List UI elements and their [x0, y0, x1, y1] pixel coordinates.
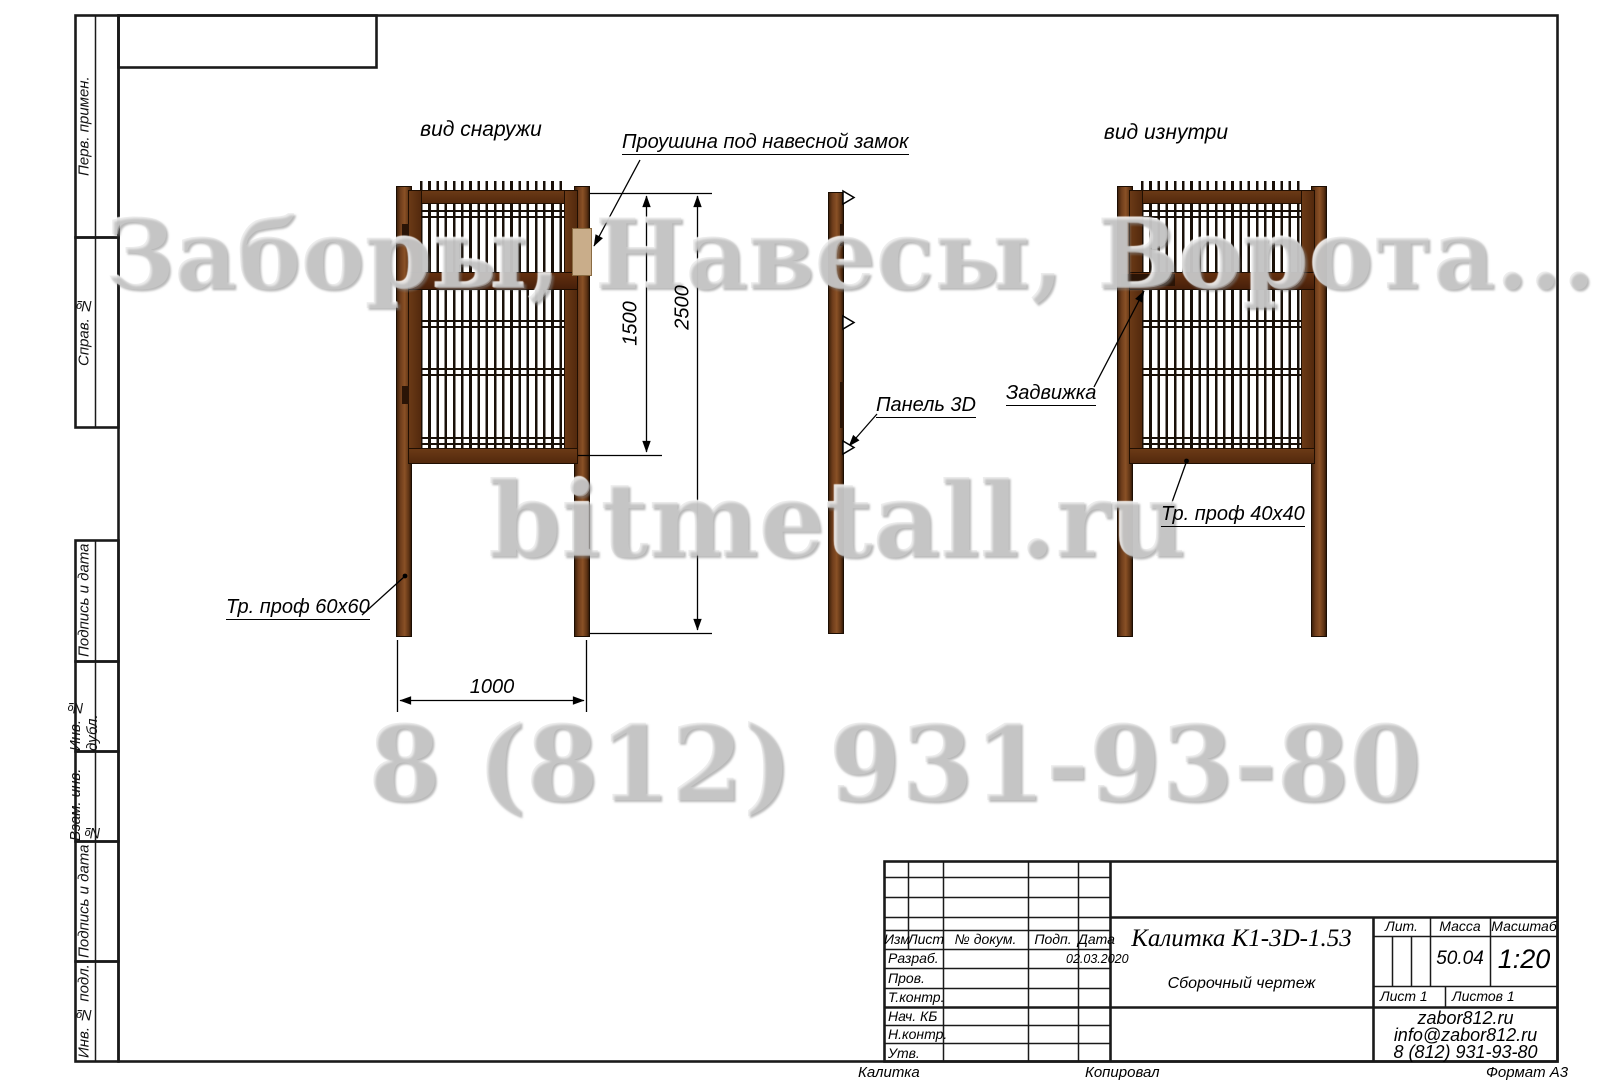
tb-row-nachkb: Нач. КБ — [888, 1008, 937, 1024]
tb-date: 02.03.2020 — [1066, 952, 1129, 966]
margin-label-podpis-data-2: Подпись и дата — [72, 841, 96, 961]
dimension-2500: 2500 — [672, 268, 695, 348]
tb-row-razrab: Разраб. — [888, 950, 939, 966]
dimension-1500: 1500 — [620, 284, 643, 364]
tb-row-tkontr: Т.контр. — [888, 989, 944, 1005]
tb-mass-value: 50.04 — [1430, 948, 1490, 970]
margin-label-podpis-data-1: Подпись и дата — [72, 540, 96, 661]
footer-center: Копировал — [1085, 1064, 1160, 1080]
tb-lit-label: Лит. — [1373, 918, 1430, 934]
tb-scale-label: Масштаб — [1490, 918, 1558, 934]
tb-row-utv: Утв. — [888, 1045, 920, 1061]
tb-mass-label: Масса — [1430, 918, 1490, 934]
tb-row-nkontr: Н.контр. — [888, 1026, 947, 1042]
annotation-frame-profile: Тр. проф 40х40 — [1161, 503, 1305, 527]
margin-label-inv-dubl: Инв. № дубл. — [72, 661, 96, 751]
inside-view-title: вид изнутри — [1096, 121, 1236, 145]
annotation-post-profile: Тр. проф 60х60 — [226, 596, 370, 620]
tb-phone: 8 (812) 931-93-80 — [1373, 1042, 1558, 1063]
outside-view-title: вид снаружи — [411, 118, 551, 142]
watermark-line1: Заборы, Навесы, Ворота... — [105, 198, 1595, 311]
annotation-latch: Задвижка — [1006, 382, 1096, 406]
annotation-lock-eye: Проушина под навесной замок — [622, 131, 909, 155]
tb-scale-value: 1:20 — [1490, 944, 1558, 975]
tb-doc-type: Сборочный чертеж — [1110, 975, 1373, 993]
margin-label-vzam-inv: Взам. инв. № — [72, 751, 96, 841]
watermark-line3: 8 (812) 931-93-80 — [368, 702, 1421, 825]
tb-header-podp: Подп. — [1028, 931, 1078, 947]
tb-row-prov: Пров. — [888, 970, 925, 986]
margin-label-inv-podl: Инв. № подл. — [72, 961, 96, 1061]
dimension-1000: 1000 — [452, 676, 532, 699]
drawing-sheet: Перв. примен. Справ. № Подпись и дата Ин… — [0, 0, 1620, 1080]
watermark-line2: bitmetall.ru — [488, 458, 1186, 581]
tb-doc-title: Калитка К1-3D-1.53 — [1110, 925, 1373, 953]
tb-header-izm: Изм — [884, 931, 908, 947]
margin-label-sprav-no: Справ. № — [72, 237, 96, 427]
tb-sheets: Листов 1 — [1452, 988, 1515, 1004]
annotation-panel-3d: Панель 3D — [876, 394, 976, 418]
tb-header-dokum: № докум. — [943, 931, 1028, 947]
hinge-bottom — [402, 386, 409, 404]
top-left-stamp-box — [119, 16, 377, 68]
footer-left: Калитка — [858, 1064, 920, 1080]
tb-header-list: Лист — [908, 931, 943, 947]
margin-label-perv-primen: Перв. примен. — [72, 15, 96, 237]
tb-header-data: Дата — [1078, 931, 1110, 947]
panel-edge-bottom — [840, 382, 844, 428]
tb-sheet: Лист 1 — [1380, 988, 1428, 1004]
footer-right: Формат А3 — [1486, 1064, 1568, 1080]
